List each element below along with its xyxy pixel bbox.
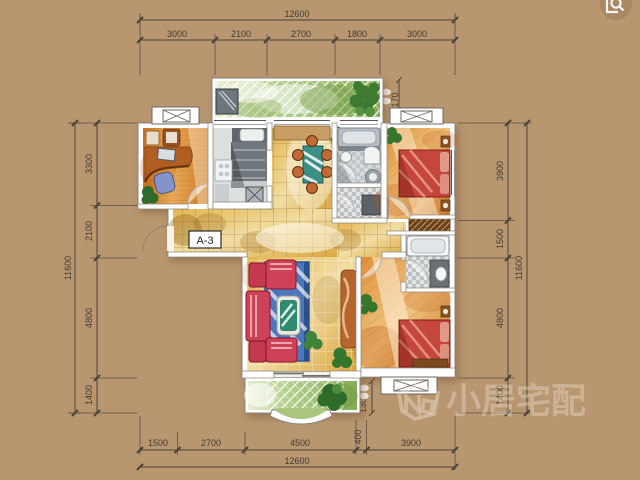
svg-text:11600: 11600 [63, 256, 73, 280]
svg-text:A-3: A-3 [196, 235, 213, 247]
svg-text:3000: 3000 [167, 29, 187, 39]
svg-text:2700: 2700 [291, 29, 311, 39]
svg-text:170: 170 [390, 92, 400, 107]
svg-text:2100: 2100 [231, 29, 251, 39]
svg-text:2700: 2700 [201, 438, 221, 448]
svg-text:3000: 3000 [407, 29, 427, 39]
svg-text:1500: 1500 [148, 438, 168, 448]
svg-text:1400: 1400 [84, 385, 94, 405]
svg-text:4800: 4800 [84, 308, 94, 328]
svg-text:小居宅配: 小居宅配 [446, 381, 586, 421]
svg-text:1500: 1500 [495, 229, 505, 249]
svg-text:1800: 1800 [347, 29, 367, 39]
svg-text:11600: 11600 [514, 256, 524, 280]
svg-text:12600: 12600 [284, 9, 309, 19]
svg-text:4800: 4800 [495, 308, 505, 328]
svg-text:400: 400 [353, 429, 363, 444]
svg-text:3900: 3900 [401, 438, 421, 448]
svg-text:4500: 4500 [290, 438, 310, 448]
svg-text:3900: 3900 [495, 161, 505, 181]
svg-text:2100: 2100 [84, 221, 94, 241]
svg-text:3300: 3300 [84, 154, 94, 174]
svg-text:12600: 12600 [284, 456, 309, 466]
